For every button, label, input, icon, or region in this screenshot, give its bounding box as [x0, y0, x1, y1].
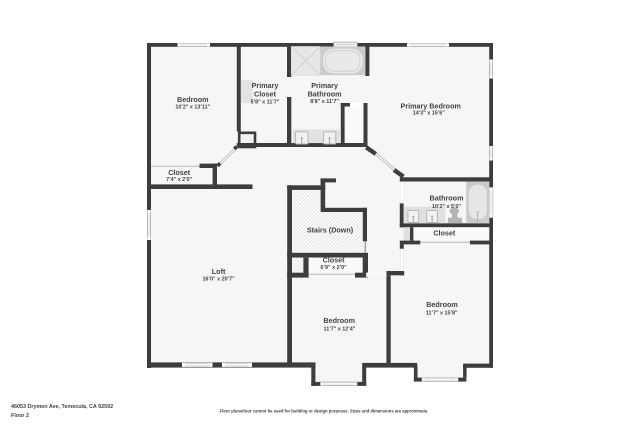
svg-text:Loft: Loft [212, 267, 226, 276]
svg-text:Primary Bedroom: Primary Bedroom [401, 102, 461, 111]
svg-text:5’8" x 11’7": 5’8" x 11’7" [251, 99, 280, 105]
svg-text:Bathroom: Bathroom [308, 89, 342, 98]
svg-text:10’2" x 13’11": 10’2" x 13’11" [175, 105, 210, 111]
svg-text:11’7" x 15’8": 11’7" x 15’8" [426, 310, 458, 316]
svg-text:Floor 2: Floor 2 [11, 413, 29, 419]
svg-text:Closet: Closet [168, 168, 191, 177]
svg-text:6’9" x 2’0": 6’9" x 2’0" [321, 265, 348, 271]
svg-text:Bathroom: Bathroom [430, 194, 464, 203]
svg-text:7’4" x 2’0": 7’4" x 2’0" [166, 177, 193, 183]
svg-text:46053 Drymen Ave, Temecula, CA: 46053 Drymen Ave, Temecula, CA 92592 [11, 404, 113, 410]
svg-text:Bedroom: Bedroom [177, 95, 209, 104]
svg-text:10’2" x 5’0": 10’2" x 5’0" [432, 204, 462, 210]
svg-text:Bedroom: Bedroom [323, 316, 355, 325]
svg-text:Stairs (Down): Stairs (Down) [307, 226, 354, 235]
svg-text:8’8" x 11’7": 8’8" x 11’7" [310, 99, 339, 105]
svg-text:Floor plans/tour cannot be use: Floor plans/tour cannot be used for buil… [220, 409, 429, 414]
svg-text:16’0" x 20’7": 16’0" x 20’7" [203, 277, 236, 283]
svg-text:Closet: Closet [323, 255, 346, 264]
svg-text:Closet: Closet [433, 228, 456, 237]
svg-text:Bedroom: Bedroom [426, 300, 458, 309]
svg-text:Closet: Closet [254, 89, 277, 98]
svg-text:11’7" x 12’4": 11’7" x 12’4" [324, 326, 356, 332]
svg-text:14’3" x 15’6": 14’3" x 15’6" [413, 110, 446, 116]
